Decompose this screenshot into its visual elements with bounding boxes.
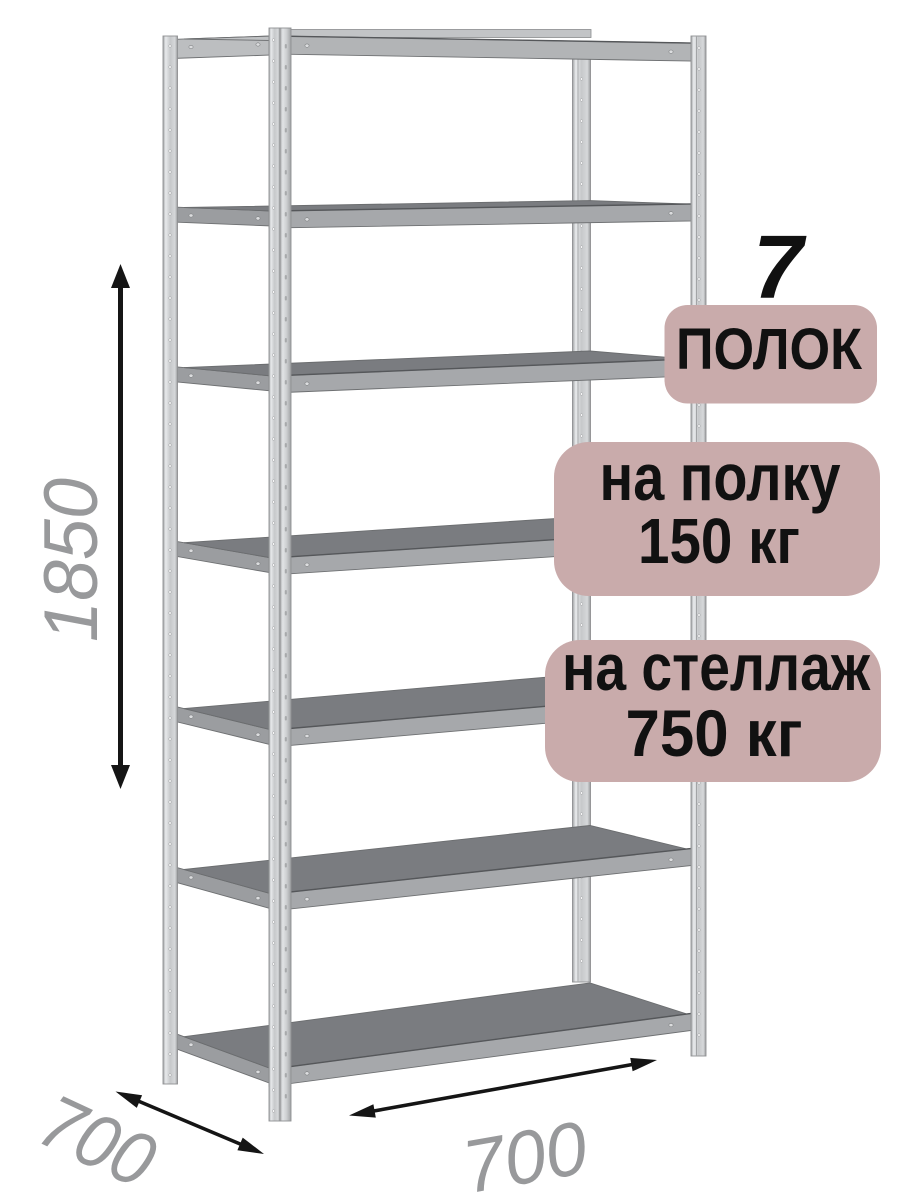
- svg-text:ПОЛОК: ПОЛОК: [676, 317, 863, 382]
- svg-text:150 кг: 150 кг: [638, 505, 800, 577]
- svg-text:750 кг: 750 кг: [626, 696, 803, 770]
- svg-text:1850: 1850: [29, 478, 114, 642]
- svg-text:на полку: на полку: [600, 440, 841, 514]
- svg-text:на стеллаж: на стеллаж: [562, 630, 871, 704]
- svg-text:7: 7: [753, 218, 807, 318]
